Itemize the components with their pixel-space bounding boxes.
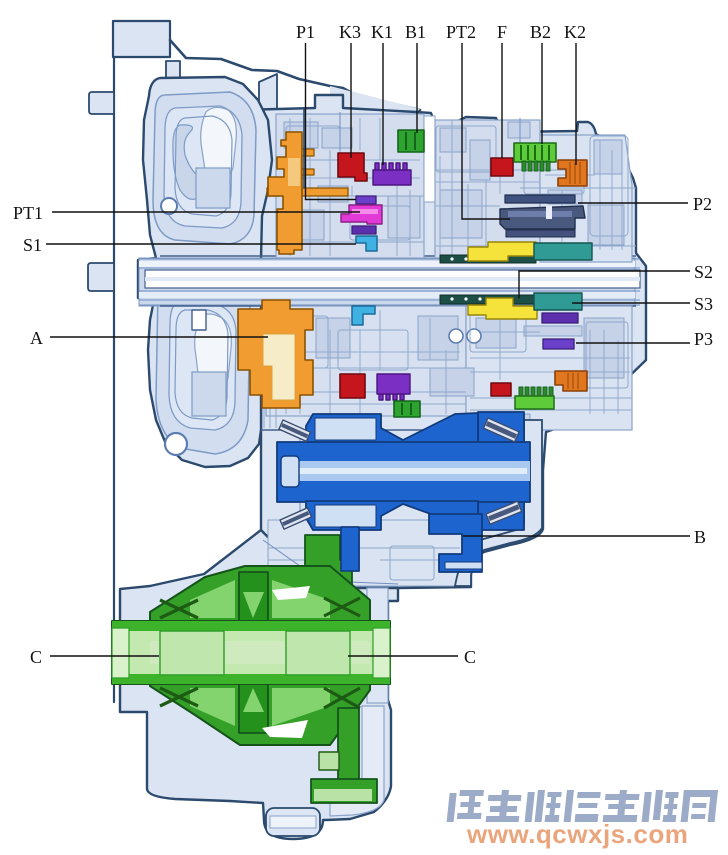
svg-text:K1: K1: [371, 22, 393, 42]
svg-text:www.qcwxjs.com: www.qcwxjs.com: [466, 819, 688, 849]
svg-text:B1: B1: [405, 22, 426, 42]
svg-text:S1: S1: [23, 235, 42, 255]
svg-text:PT2: PT2: [446, 22, 476, 42]
svg-text:B2: B2: [530, 22, 551, 42]
svg-text:A: A: [30, 328, 43, 348]
svg-text:C: C: [30, 647, 42, 667]
svg-text:F: F: [497, 22, 507, 42]
svg-text:K3: K3: [339, 22, 361, 42]
svg-text:P2: P2: [693, 194, 712, 214]
svg-text:PT1: PT1: [13, 203, 43, 223]
svg-text:P1: P1: [296, 22, 315, 42]
svg-text:S2: S2: [694, 262, 713, 282]
svg-text:C: C: [464, 647, 476, 667]
svg-text:S3: S3: [694, 294, 713, 314]
svg-text:B: B: [694, 527, 706, 547]
svg-text:K2: K2: [564, 22, 586, 42]
svg-text:P3: P3: [694, 329, 713, 349]
